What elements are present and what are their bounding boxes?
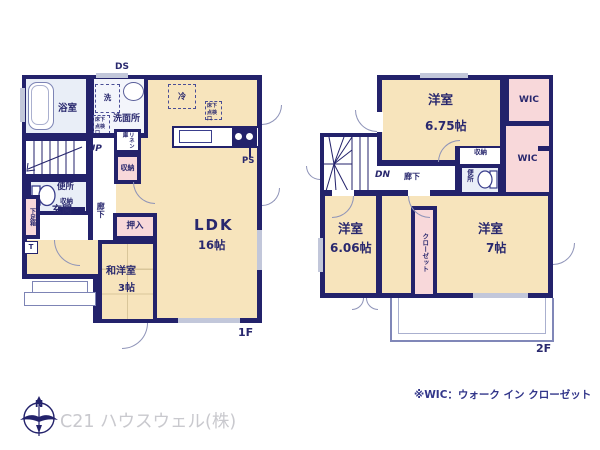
door-arc-room675 [355, 110, 377, 132]
washer-icon: 洗 [95, 84, 120, 113]
door-arc-tatami-out [122, 323, 148, 349]
door-arc-room7-out [553, 243, 575, 265]
shoe-box: 下足箱 [22, 195, 40, 239]
window [96, 73, 128, 78]
ldk-name-label: LDK [194, 217, 234, 234]
kitchen-sink-icon [179, 130, 212, 143]
wall [22, 274, 98, 279]
fridge-space: 冷 [168, 84, 196, 109]
oshiire-label: 押入 [126, 222, 143, 232]
toilet-label-2f: 便所 [465, 169, 472, 182]
wall-stub [538, 146, 553, 151]
fridge-label: 冷 [178, 92, 186, 101]
linen-label: リネン庫 [121, 132, 134, 150]
shutter-arc [366, 298, 378, 310]
wic-upper-label: WIC [519, 95, 539, 105]
ps-label: PS [242, 157, 254, 167]
dn-label: DN [375, 170, 390, 180]
floor1-label: 1F [238, 327, 253, 340]
balcony [390, 298, 554, 342]
hallway-label-2f: 廊下 [404, 172, 420, 181]
window [20, 88, 25, 122]
storage-washroom-label: 収納 [121, 164, 135, 172]
closet-2f: クローゼット [411, 206, 437, 298]
porch-step-lower [24, 292, 96, 306]
room7-size-label: 7帖 [486, 242, 506, 256]
storage-washroom: 収納 [114, 153, 141, 184]
ldk-size-label: 16帖 [198, 239, 226, 252]
compass-icon: N [16, 390, 62, 440]
hallway-label-1f: 廊下 [96, 202, 105, 218]
room606-size-label: 6.06帖 [330, 242, 372, 256]
room675-name-label: 洋室 [428, 93, 453, 107]
storage-2f-label: 収納 [474, 149, 487, 156]
wic-lower: WIC [502, 122, 553, 196]
tatami-name-label: 和洋室 [106, 266, 136, 278]
floor2-label: 2F [536, 343, 551, 356]
window [178, 318, 240, 323]
wic-note: ※WIC：ウォーク イン クローゼット [414, 389, 591, 401]
shutter-arc [352, 298, 364, 310]
door-arc-ldk-out [262, 188, 280, 206]
window [420, 73, 468, 78]
shoe-box-t: T [24, 241, 38, 254]
closet-2f-label: クローゼット [420, 233, 427, 272]
room606-name-label: 洋室 [338, 222, 363, 236]
toilet-label-1f: 便所 [57, 183, 74, 193]
linen-closet: リネン庫 [114, 129, 141, 153]
floor-plan-canvas: 浴室 洗 洗面所 床下点検口 UP [0, 0, 600, 450]
window-arc-stairs [306, 166, 320, 180]
company-name: C21 ハウスウェル(株) [60, 412, 236, 432]
sink-icon [123, 82, 144, 101]
wic-lower-label: WIC [518, 154, 538, 164]
ds-label: DS [115, 62, 129, 72]
stairs-2f [324, 137, 377, 191]
toilet-icon [477, 168, 499, 192]
stairs-up-icon [26, 141, 86, 174]
tatami-size-label: 3帖 [118, 283, 135, 295]
compass-north-label: N [35, 399, 43, 410]
room-tatami [98, 240, 157, 323]
window [318, 238, 323, 272]
room7-name-label: 洋室 [478, 222, 503, 236]
stove-icon [232, 128, 257, 146]
up-label: UP [88, 144, 102, 154]
stairs-down-icon [324, 137, 377, 191]
underfloor-hatch-kitchen: 床下点検口 [205, 101, 222, 120]
wic-upper: WIC [505, 75, 553, 125]
stairs-1f [22, 137, 90, 178]
door-gap [377, 112, 383, 132]
bathtub-icon [28, 82, 54, 130]
closet-oshiire: 押入 [113, 213, 157, 240]
bathroom-label: 浴室 [58, 104, 77, 115]
shoe-box-label: 下足箱 [28, 208, 35, 226]
door-arc-kitchen-out [262, 105, 282, 125]
room675-size-label: 6.75帖 [425, 120, 467, 134]
washer-label: 洗 [104, 94, 112, 103]
entrance-label: 玄関 [52, 205, 72, 217]
washroom-label: 洗面所 [113, 114, 140, 124]
window [257, 230, 262, 270]
underfloor-hatch-washroom: 床下点検口 [93, 115, 110, 134]
